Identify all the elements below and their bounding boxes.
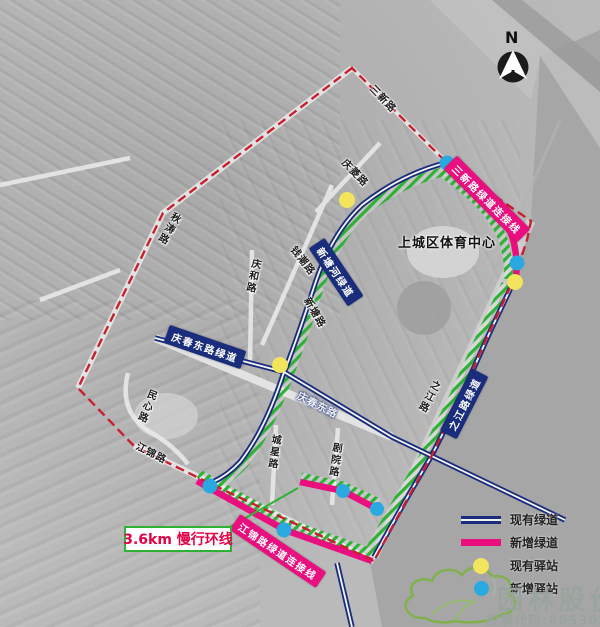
- new-greenway-swatch: [460, 539, 502, 546]
- existing-station-swatch: [460, 558, 502, 574]
- loop-callout: 3.6km 慢行环线: [124, 526, 232, 552]
- poi-label-sports-center: 上城区体育中心: [398, 232, 496, 251]
- existing-station-dot: [339, 192, 355, 208]
- legend-label: 现有绿道: [510, 511, 558, 528]
- new-station-dot: [203, 479, 218, 494]
- greenway-planning-map: 三新路 庆菱路 秋涛路 庆和路 钱潮路 新塘路 庆春东路 之江路 民心路 江锦路…: [0, 0, 600, 627]
- legend-label: 现有驿站: [510, 557, 558, 574]
- legend-label: 新增绿道: [510, 534, 558, 551]
- legend-row-new-greenway: 新增绿道: [460, 531, 595, 554]
- existing-greenway-swatch: [460, 516, 502, 524]
- legend-row-existing-greenway: 现有绿道: [460, 508, 595, 531]
- company-stock-code: 股票代码:605303: [486, 610, 600, 627]
- new-station-dot: [277, 523, 292, 538]
- existing-station-dot: [272, 357, 288, 373]
- new-station-dot: [510, 256, 525, 271]
- existing-station-dot: [507, 274, 523, 290]
- legend-row-existing-station: 现有驿站: [460, 554, 595, 577]
- north-label: N: [505, 28, 518, 47]
- new-station-dot: [336, 484, 350, 498]
- new-station-dot: [370, 502, 384, 516]
- new-station-swatch: [460, 581, 502, 596]
